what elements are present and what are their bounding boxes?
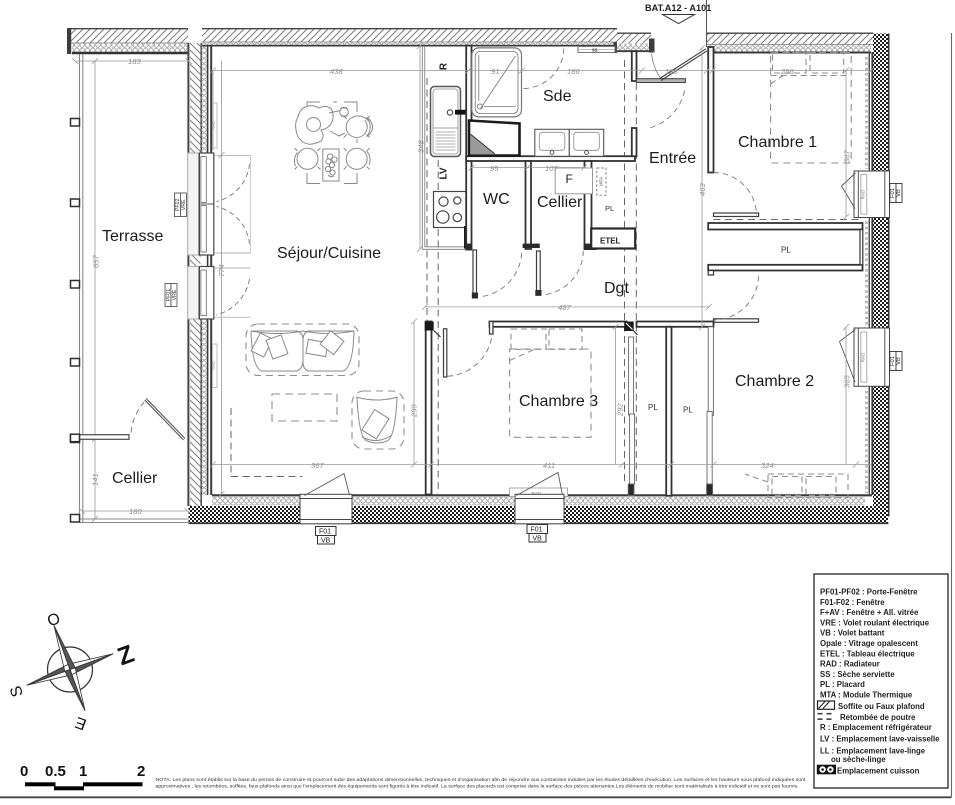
svg-text:R: R — [439, 62, 450, 70]
svg-text:299: 299 — [410, 404, 419, 418]
svg-text:Terrasse: Terrasse — [102, 228, 163, 245]
svg-text:VB: VB — [896, 357, 902, 365]
svg-text:VRE: VRE — [181, 199, 187, 210]
svg-text:324: 324 — [761, 461, 774, 470]
svg-text:MTA: MTA — [598, 176, 603, 186]
svg-text:RAD: RAD — [211, 121, 216, 130]
svg-text:LV: LV — [439, 167, 450, 179]
svg-text:91: 91 — [491, 67, 499, 76]
svg-text:Sde: Sde — [543, 88, 572, 105]
svg-text:R : Emplacement réfrigérateur: R : Emplacement réfrigérateur — [820, 723, 932, 732]
svg-text:F01: F01 — [531, 527, 543, 534]
svg-text:VB: VB — [321, 538, 331, 545]
svg-text:128: 128 — [665, 67, 678, 76]
svg-text:Soffite ou Faux plafond: Soffite ou Faux plafond — [838, 702, 925, 711]
svg-text:PL : Placard: PL : Placard — [820, 680, 865, 689]
svg-text:VB : Volet battant: VB : Volet battant — [820, 629, 885, 638]
svg-text:0: 0 — [20, 763, 28, 780]
svg-text:approximatives ; les retombées: approximatives ; les retombées, soffites… — [156, 783, 799, 788]
svg-text:LV : Emplacement lave-vaissell: LV : Emplacement lave-vaisselle — [820, 734, 940, 743]
svg-text:292: 292 — [616, 403, 625, 417]
svg-text:F: F — [566, 172, 573, 186]
svg-text:Dgt: Dgt — [604, 280, 629, 297]
svg-text:256: 256 — [780, 67, 794, 76]
svg-text:Retombée de poutre: Retombée de poutre — [840, 713, 916, 722]
svg-text:VB: VB — [533, 536, 543, 543]
svg-text:BAT.A12 - A101: BAT.A12 - A101 — [645, 3, 711, 13]
svg-text:WC: WC — [483, 191, 510, 208]
svg-text:F01: F01 — [890, 188, 896, 198]
svg-text:F01-F02 : Fenêtre: F01-F02 : Fenêtre — [820, 598, 885, 607]
svg-text:PL: PL — [781, 246, 791, 255]
svg-text:ETEL: ETEL — [600, 237, 621, 246]
svg-text:180: 180 — [129, 507, 142, 516]
svg-text:2: 2 — [137, 763, 145, 780]
svg-text:ETEL : Tableau électrique: ETEL : Tableau électrique — [820, 649, 915, 658]
svg-text:SS : Sèche serviette: SS : Sèche serviette — [820, 670, 895, 679]
svg-text:367: 367 — [843, 150, 852, 163]
svg-text:95: 95 — [490, 164, 499, 173]
svg-text:657: 657 — [92, 255, 101, 268]
svg-text:0.5: 0.5 — [45, 763, 66, 780]
svg-text:1: 1 — [79, 763, 87, 780]
svg-text:PF01-PF02 : Porte-Fenêtre: PF01-PF02 : Porte-Fenêtre — [820, 588, 918, 597]
svg-text:PL: PL — [605, 204, 614, 213]
svg-text:Emplacement cuisson: Emplacement cuisson — [837, 767, 920, 776]
svg-text:VRE : Volet roulant électrique: VRE : Volet roulant électrique — [820, 618, 930, 627]
svg-text:Séjour/Cuisine: Séjour/Cuisine — [277, 245, 381, 262]
svg-text:VB: VB — [896, 189, 902, 197]
svg-text:ou sèche-linge: ou sèche-linge — [831, 755, 886, 764]
svg-text:411: 411 — [543, 461, 555, 470]
svg-text:186: 186 — [567, 67, 580, 76]
svg-text:Cellier: Cellier — [112, 470, 158, 487]
svg-text:141: 141 — [91, 473, 100, 486]
svg-text:463: 463 — [698, 183, 707, 196]
svg-text:NOTA: Les plans sont établis s: NOTA: Les plans sont établis sur la base… — [156, 777, 807, 782]
svg-text:PL: PL — [683, 406, 693, 415]
svg-text:Opale : Vitrage opalescent: Opale : Vitrage opalescent — [820, 639, 918, 648]
svg-text:Chambre 2: Chambre 2 — [735, 373, 814, 390]
svg-text:F01: F01 — [319, 529, 331, 536]
svg-text:438: 438 — [330, 67, 343, 76]
svg-text:Chambre 3: Chambre 3 — [519, 393, 598, 410]
svg-text:Cellier: Cellier — [537, 194, 583, 211]
svg-text:183: 183 — [128, 57, 141, 66]
svg-text:107: 107 — [545, 164, 558, 173]
svg-text:VRE: VRE — [172, 289, 178, 300]
svg-text:RAD: RAD — [211, 361, 216, 370]
svg-text:487: 487 — [558, 303, 571, 312]
svg-text:365: 365 — [843, 375, 852, 388]
svg-text:MTA : Module Thermique: MTA : Module Thermique — [820, 691, 913, 700]
svg-text:RAD: RAD — [860, 352, 865, 362]
svg-text:348: 348 — [417, 140, 426, 153]
svg-text:RAD : Radiateur: RAD : Radiateur — [820, 660, 880, 669]
svg-text:F+AV : Fenêtre + All. vitrée: F+AV : Fenêtre + All. vitrée — [820, 608, 919, 617]
svg-text:ss: ss — [592, 48, 598, 54]
svg-text:367: 367 — [311, 461, 324, 470]
svg-text:Entrée: Entrée — [649, 150, 696, 167]
svg-text:Chambre 1: Chambre 1 — [738, 134, 817, 151]
svg-text:RAD: RAD — [860, 189, 865, 199]
svg-text:PL: PL — [648, 403, 658, 412]
svg-text:774: 774 — [217, 264, 226, 277]
svg-text:F01: F01 — [890, 356, 896, 366]
